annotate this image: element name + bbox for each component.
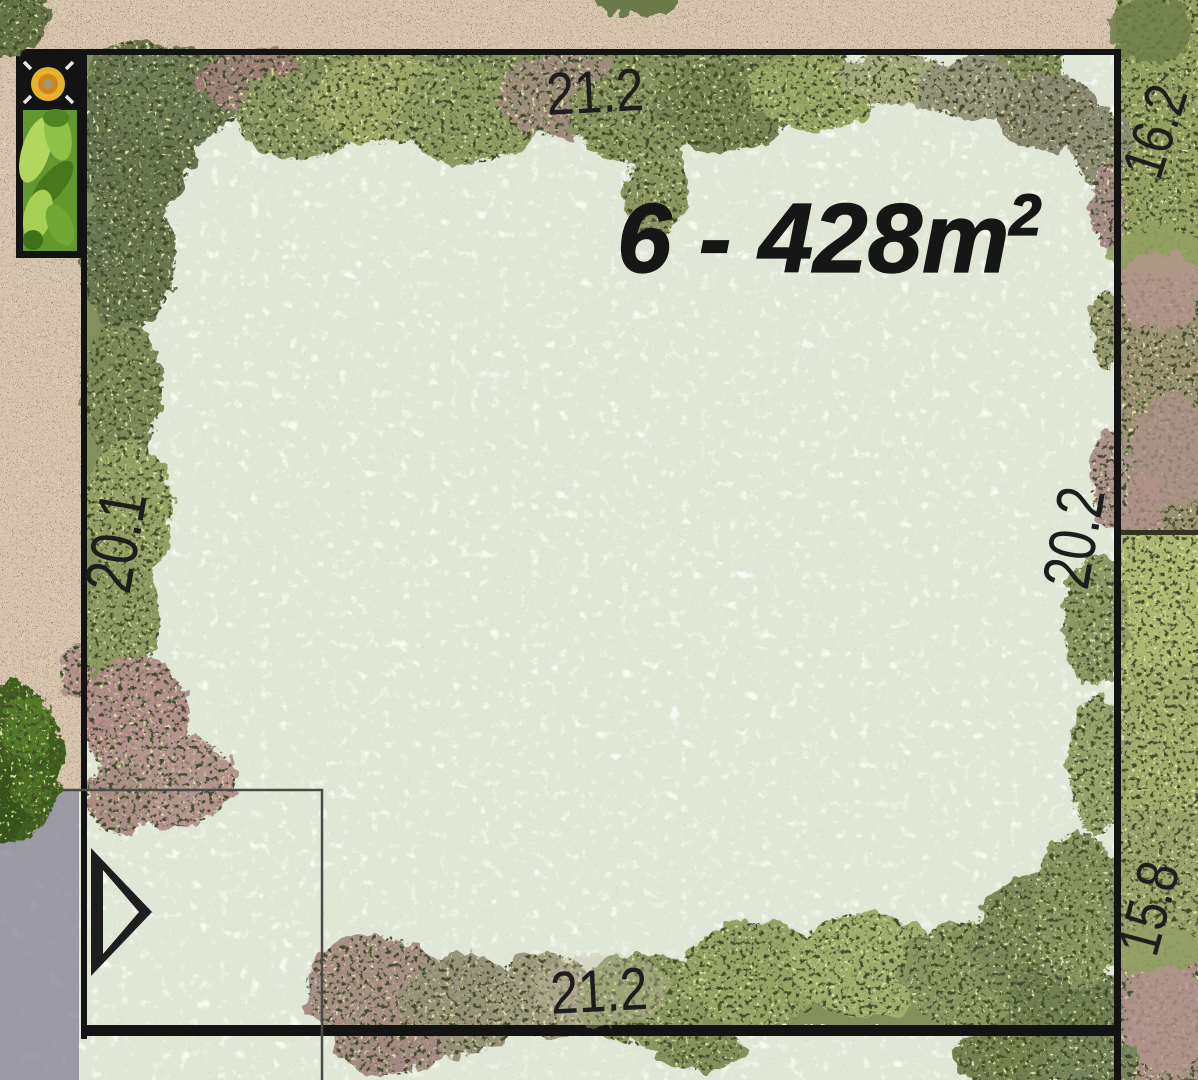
svg-text:21.2: 21.2 bbox=[545, 56, 646, 128]
svg-text:6 - 428m2: 6 - 428m2 bbox=[617, 183, 1042, 293]
svg-text:21.2: 21.2 bbox=[549, 955, 650, 1027]
